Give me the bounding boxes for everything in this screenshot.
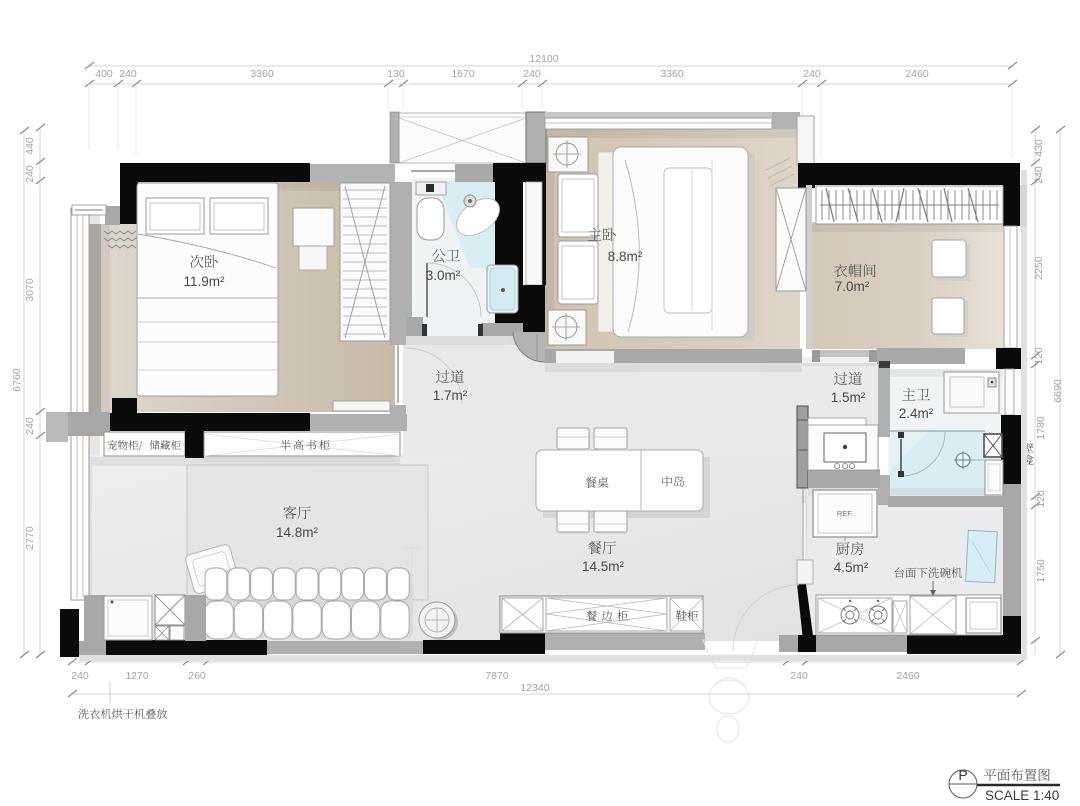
svg-text:440: 440 [24,137,36,155]
svg-text:14.8m²: 14.8m² [276,525,319,540]
svg-text:11.9m²: 11.9m² [183,274,225,289]
svg-text:240: 240 [71,670,89,682]
svg-text:240: 240 [1033,166,1045,184]
svg-text:240: 240 [24,165,36,183]
svg-text:3360: 3360 [250,68,274,80]
svg-text:3360: 3360 [660,68,684,80]
svg-text:430: 430 [1033,139,1045,157]
svg-text:7.0m²: 7.0m² [835,279,870,294]
svg-text:6760: 6760 [11,368,23,392]
svg-text:4.5m²: 4.5m² [834,560,869,575]
svg-text:P: P [958,767,967,783]
svg-text:240: 240 [24,417,36,435]
svg-text:240: 240 [803,68,821,80]
svg-text:12100: 12100 [529,53,558,65]
svg-text:1.5m²: 1.5m² [831,390,866,405]
svg-text:12340: 12340 [520,682,549,694]
svg-text:2.4m²: 2.4m² [899,406,934,421]
svg-text:14.5m²: 14.5m² [582,559,625,574]
svg-text:8.8m²: 8.8m² [608,249,643,264]
svg-text:1750: 1750 [1035,559,1047,583]
svg-text:130: 130 [387,68,405,80]
svg-text:2250: 2250 [1033,256,1045,280]
svg-text:260: 260 [188,670,206,682]
svg-text:SCALE 1:40: SCALE 1:40 [985,788,1059,803]
svg-text:240: 240 [790,670,808,682]
svg-text:400: 400 [95,68,113,80]
svg-text:2460: 2460 [896,670,920,682]
svg-text:1.7m²: 1.7m² [433,388,468,403]
svg-text:1270: 1270 [125,670,149,682]
svg-text:240: 240 [119,68,137,80]
svg-text:1780: 1780 [1035,416,1047,440]
svg-text:3.0m²: 3.0m² [426,268,461,283]
svg-text:7870: 7870 [485,670,509,682]
svg-text:1670: 1670 [451,68,475,80]
svg-text:2770: 2770 [24,526,36,550]
svg-text:3070: 3070 [24,278,36,302]
svg-text:2460: 2460 [905,68,929,80]
svg-text:120: 120 [1035,490,1047,508]
svg-text:240: 240 [523,68,541,80]
svg-text:6690: 6690 [1052,379,1064,403]
svg-text:120: 120 [1033,347,1045,365]
svg-text:REF.: REF. [837,509,853,518]
